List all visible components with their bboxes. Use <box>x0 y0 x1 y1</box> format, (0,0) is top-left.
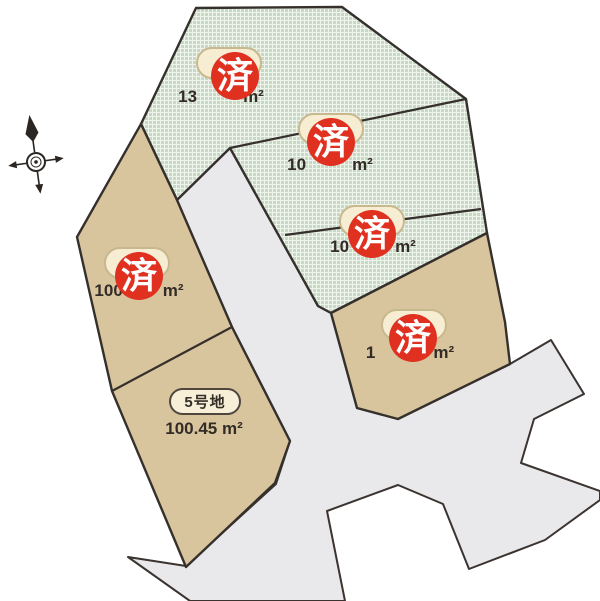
lot-1-sold-stamp: 済 <box>211 52 259 100</box>
lot-6-area-value: 1 <box>366 343 375 363</box>
lot-4-sold-stamp: 済 <box>115 252 163 300</box>
lot-3-area-unit: m² <box>395 237 416 257</box>
lot-5-label-pill: 5号地 <box>169 388 241 415</box>
lot-6-sold-stamp: 済 <box>389 314 437 362</box>
lot-5-area-text: 100.45 m² <box>134 419 274 439</box>
lot-4-area-unit: m² <box>163 281 184 301</box>
lot-6-area-unit: m² <box>433 343 454 363</box>
lot-5-label: 5号地 <box>184 391 225 412</box>
lot-2-area-value: 10 <box>287 155 306 175</box>
compass-rose-icon <box>3 113 67 197</box>
lot-2-area-unit: m² <box>352 155 373 175</box>
lot-1-area-value: 13 <box>178 87 197 107</box>
lot-5-area-value: 100.45 m² <box>165 419 243 439</box>
site-map: 13 m² 済 10 m² 済 10 m² 済 100 m² 済 5号地 100… <box>0 0 600 601</box>
lot-3-area-value: 10 <box>330 237 349 257</box>
lot-3-sold-stamp: 済 <box>348 210 396 258</box>
lot-2-sold-stamp: 済 <box>307 118 355 166</box>
